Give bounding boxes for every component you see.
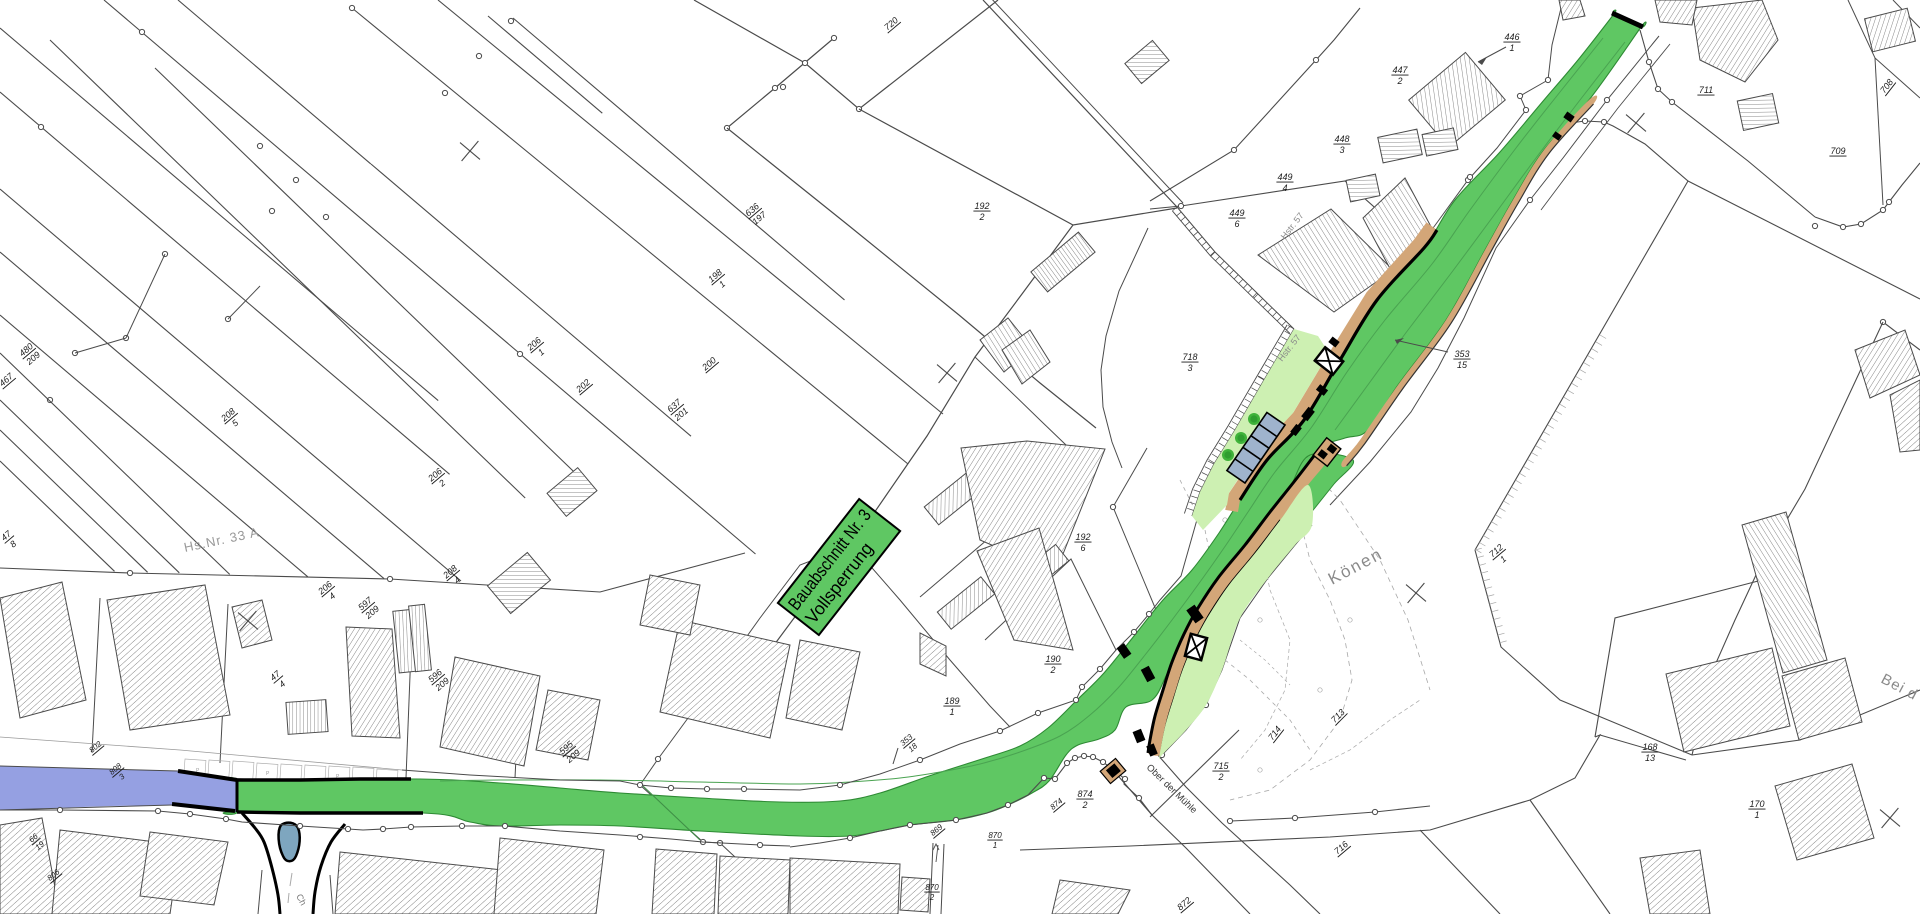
- svg-text:353: 353: [1454, 349, 1469, 359]
- svg-text:2: 2: [929, 893, 935, 902]
- svg-text:449: 449: [1277, 172, 1292, 182]
- svg-text:709: 709: [1830, 146, 1845, 156]
- svg-text:189: 189: [944, 696, 959, 706]
- svg-text:2: 2: [1081, 800, 1087, 810]
- svg-text:1: 1: [1754, 810, 1759, 820]
- svg-text:6: 6: [1234, 219, 1239, 229]
- svg-text:449: 449: [1229, 208, 1244, 218]
- svg-text:3: 3: [1339, 145, 1344, 155]
- svg-text:4: 4: [1282, 183, 1287, 193]
- svg-text:2: 2: [1396, 76, 1402, 86]
- svg-text:190: 190: [1045, 654, 1060, 664]
- svg-text:870: 870: [925, 883, 939, 892]
- svg-text:874: 874: [1077, 789, 1092, 799]
- svg-text:6: 6: [1080, 543, 1085, 553]
- svg-text:13: 13: [1645, 753, 1655, 763]
- svg-text:192: 192: [974, 201, 989, 211]
- svg-text:2: 2: [1049, 665, 1055, 675]
- svg-text:170: 170: [1749, 799, 1764, 809]
- svg-text:711: 711: [1699, 85, 1713, 95]
- svg-text:2: 2: [1217, 772, 1223, 782]
- svg-text:1: 1: [1509, 43, 1514, 53]
- svg-text:447: 447: [1392, 65, 1408, 75]
- svg-text:446: 446: [1504, 32, 1519, 42]
- svg-text:15: 15: [1457, 360, 1468, 370]
- svg-text:192: 192: [1075, 532, 1090, 542]
- svg-text:168: 168: [1642, 742, 1657, 752]
- svg-text:1: 1: [993, 841, 997, 850]
- svg-text:448: 448: [1334, 134, 1349, 144]
- svg-text:1: 1: [949, 707, 954, 717]
- svg-text:870: 870: [988, 831, 1002, 840]
- svg-text:2: 2: [978, 212, 984, 222]
- svg-text:718: 718: [1182, 352, 1197, 362]
- svg-text:715: 715: [1213, 761, 1229, 771]
- svg-text:3: 3: [1187, 363, 1192, 373]
